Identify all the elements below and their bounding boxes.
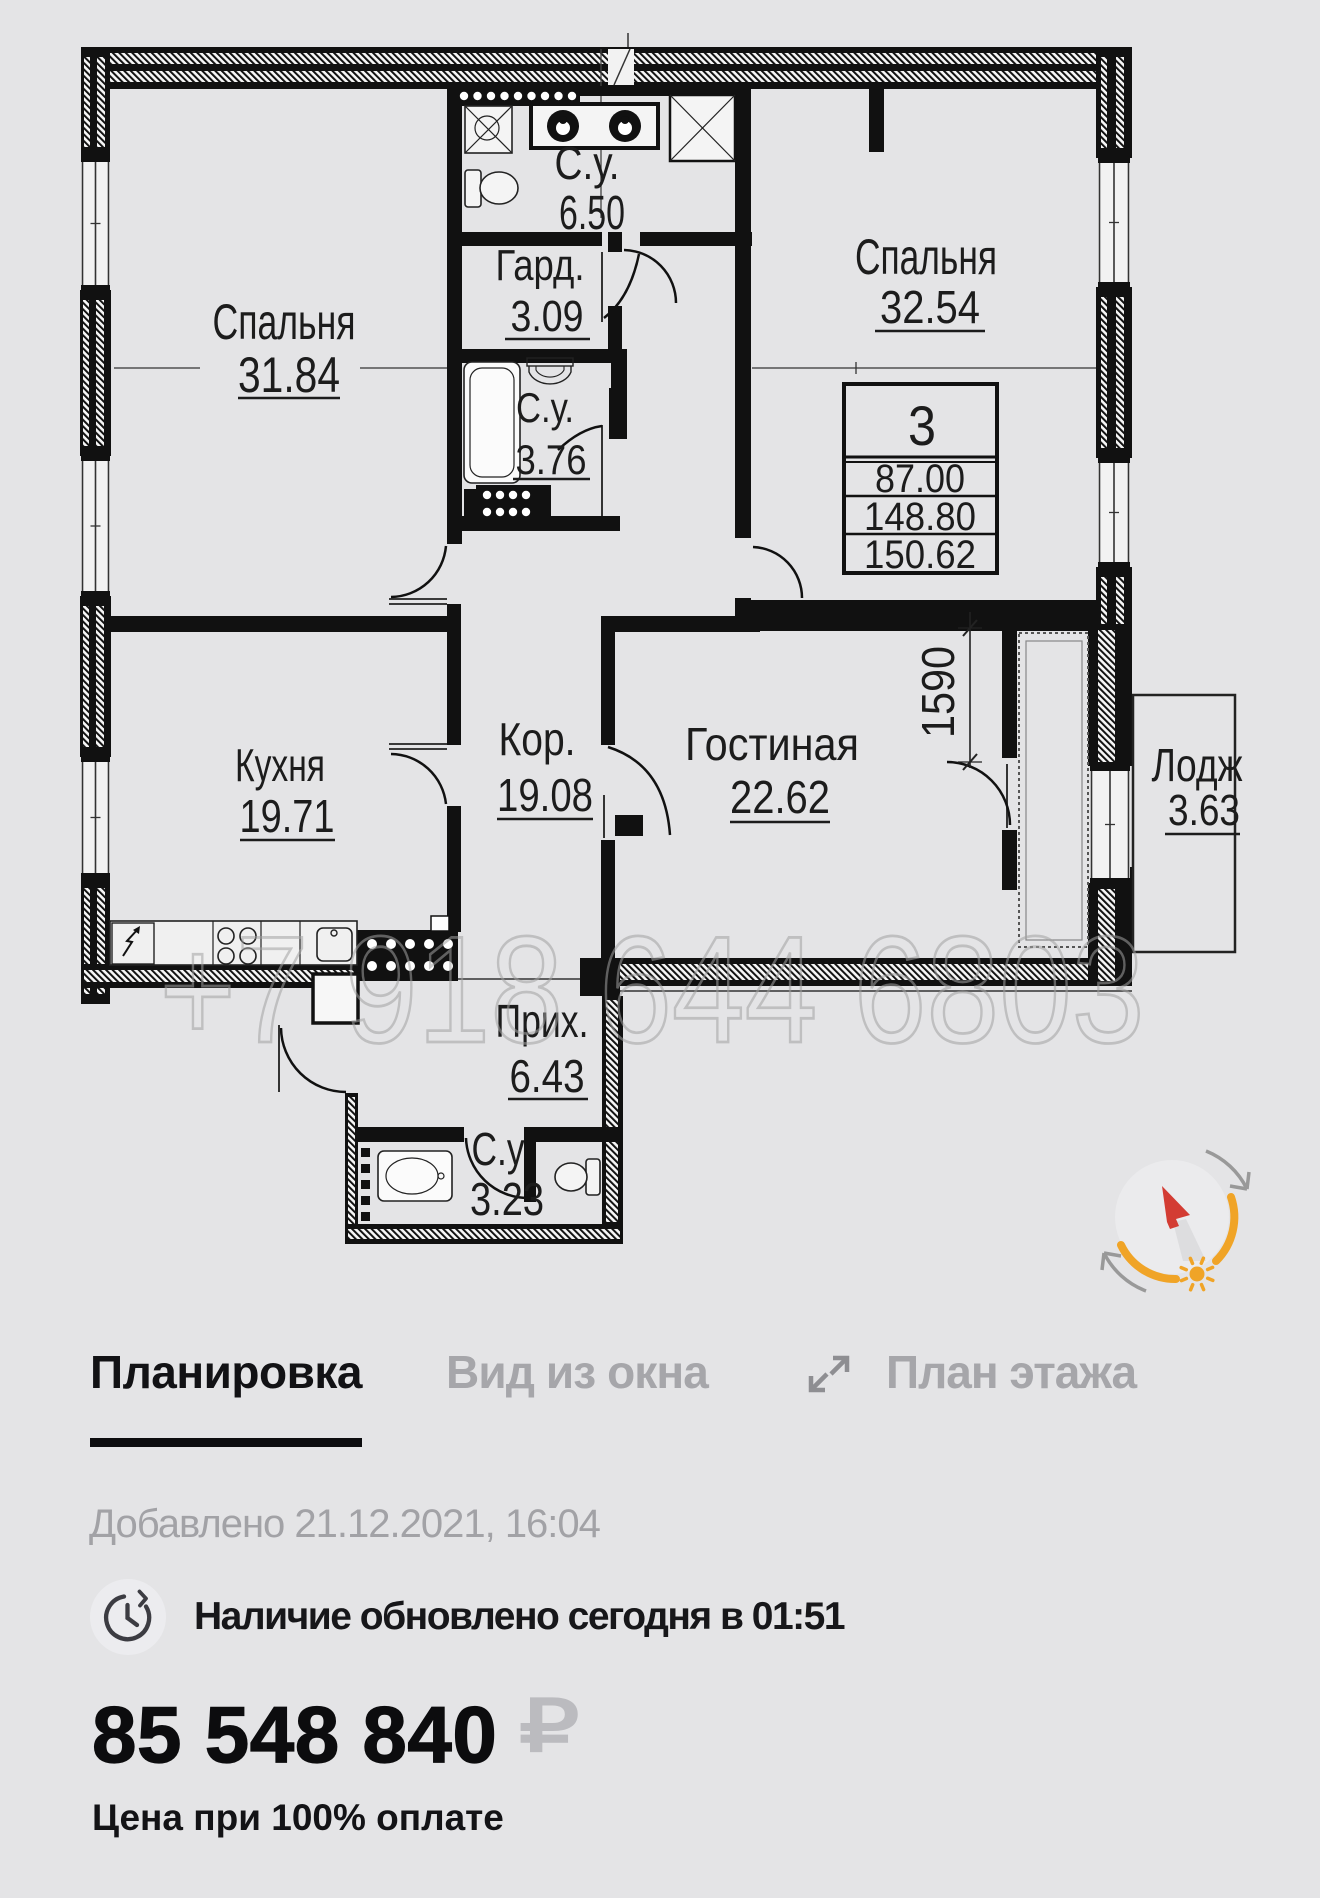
svg-text:С.у.: С.у. bbox=[555, 137, 620, 189]
svg-text:С.у: С.у bbox=[472, 1123, 525, 1175]
svg-text:19.71: 19.71 bbox=[240, 790, 335, 842]
svg-text:3.63: 3.63 bbox=[1168, 786, 1240, 835]
svg-text:31.84: 31.84 bbox=[238, 347, 340, 403]
svg-text:3: 3 bbox=[908, 394, 936, 457]
svg-text:32.54: 32.54 bbox=[880, 281, 980, 333]
svg-text:150.62: 150.62 bbox=[864, 533, 976, 577]
svg-text:С.у.: С.у. bbox=[516, 384, 574, 431]
svg-text:Гостиная: Гостиная bbox=[685, 718, 859, 770]
svg-text:Спальня: Спальня bbox=[213, 294, 356, 350]
svg-text:6.50: 6.50 bbox=[559, 187, 625, 240]
svg-text:1590: 1590 bbox=[912, 646, 964, 738]
svg-text:22.62: 22.62 bbox=[730, 771, 830, 823]
svg-text:3.09: 3.09 bbox=[511, 292, 584, 341]
svg-text:3.76: 3.76 bbox=[516, 436, 587, 483]
svg-text:+7 918 644 6803: +7 918 644 6803 bbox=[160, 905, 1145, 1075]
svg-text:Кухня: Кухня bbox=[235, 739, 325, 791]
svg-text:Спальня: Спальня bbox=[855, 229, 997, 285]
svg-text:19.08: 19.08 bbox=[497, 769, 593, 821]
svg-text:3.23: 3.23 bbox=[470, 1173, 544, 1225]
svg-text:Гард.: Гард. bbox=[496, 241, 585, 290]
svg-text:Кор.: Кор. bbox=[499, 713, 576, 765]
svg-text:Лодж: Лодж bbox=[1152, 739, 1243, 791]
